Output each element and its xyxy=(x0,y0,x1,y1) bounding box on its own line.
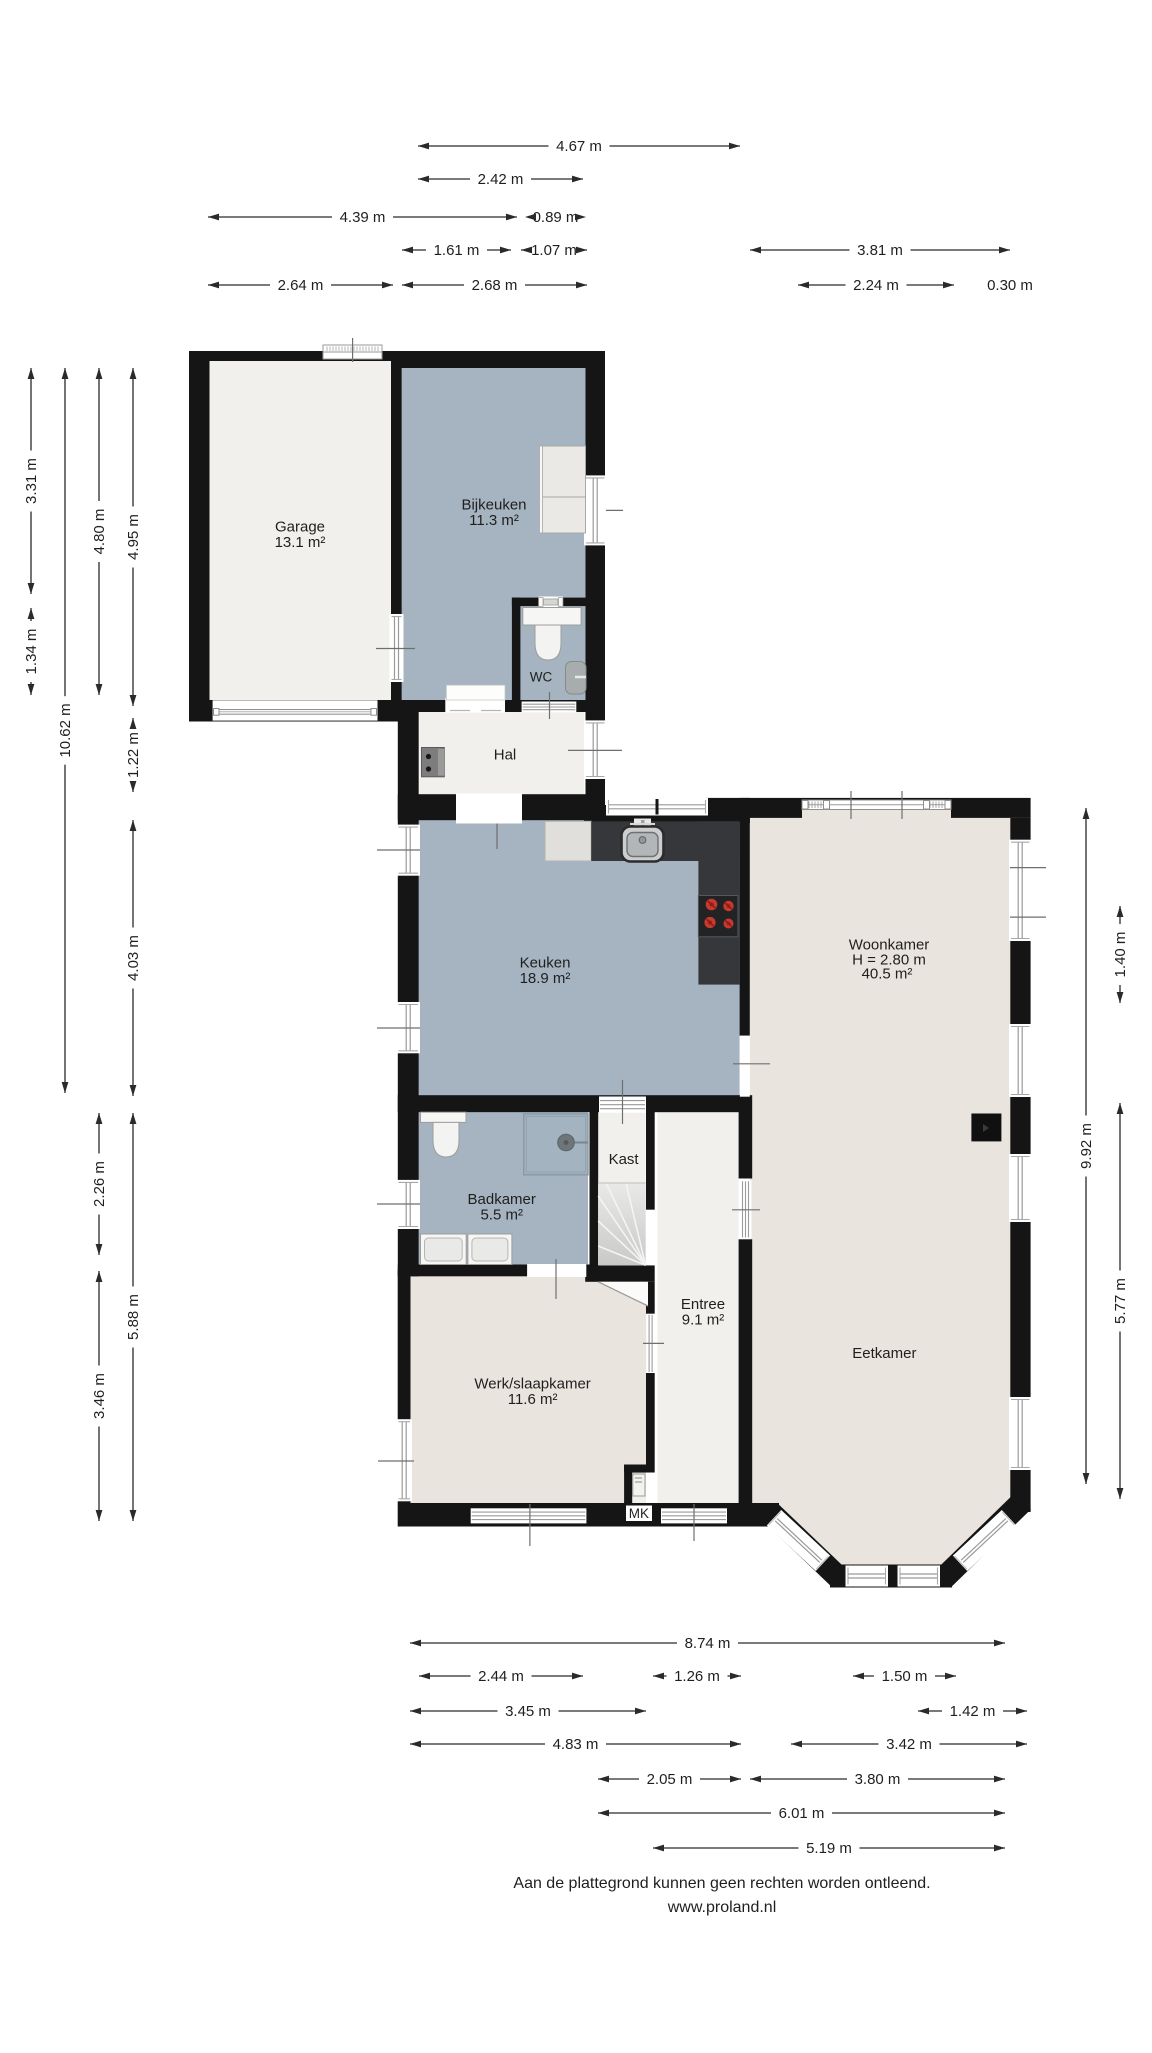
svg-text:1.07 m: 1.07 m xyxy=(531,242,577,259)
svg-text:8.74 m: 8.74 m xyxy=(685,1635,731,1652)
svg-text:4.95 m: 4.95 m xyxy=(125,514,142,560)
svg-text:5.19 m: 5.19 m xyxy=(806,1840,852,1857)
svg-text:3.42 m: 3.42 m xyxy=(886,1736,932,1753)
svg-text:1.61 m: 1.61 m xyxy=(434,242,480,259)
svg-text:1.40 m: 1.40 m xyxy=(1112,932,1129,978)
svg-text:9.92 m: 9.92 m xyxy=(1078,1123,1095,1169)
svg-text:0.30 m: 0.30 m xyxy=(987,277,1033,294)
svg-text:11.6 m²: 11.6 m² xyxy=(508,1391,558,1408)
svg-text:10.62 m: 10.62 m xyxy=(57,703,74,757)
svg-text:Entree: Entree xyxy=(681,1296,725,1313)
svg-text:Garage: Garage xyxy=(275,519,325,536)
svg-text:2.05 m: 2.05 m xyxy=(647,1771,693,1788)
svg-text:2.68 m: 2.68 m xyxy=(472,277,518,294)
svg-text:18.9 m²: 18.9 m² xyxy=(520,970,571,987)
svg-text:Hal: Hal xyxy=(494,747,517,764)
svg-text:3.80 m: 3.80 m xyxy=(855,1771,901,1788)
svg-text:MK: MK xyxy=(629,1506,649,1521)
svg-text:3.45 m: 3.45 m xyxy=(505,1703,551,1720)
svg-text:2.24 m: 2.24 m xyxy=(853,277,899,294)
svg-text:www.proland.nl: www.proland.nl xyxy=(667,1899,777,1916)
svg-text:11.3 m²: 11.3 m² xyxy=(469,512,519,529)
svg-text:3.31 m: 3.31 m xyxy=(23,458,40,504)
svg-text:5.77 m: 5.77 m xyxy=(1112,1278,1129,1324)
svg-text:Kast: Kast xyxy=(609,1151,640,1168)
svg-text:Keuken: Keuken xyxy=(520,955,571,972)
svg-text:5.5 m²: 5.5 m² xyxy=(480,1207,523,1224)
svg-text:9.1 m²: 9.1 m² xyxy=(682,1312,725,1329)
svg-text:1.26 m: 1.26 m xyxy=(674,1668,720,1685)
svg-text:2.64 m: 2.64 m xyxy=(278,277,324,294)
svg-text:Badkamer: Badkamer xyxy=(468,1191,536,1208)
svg-text:4.80 m: 4.80 m xyxy=(91,509,108,555)
svg-text:3.46 m: 3.46 m xyxy=(91,1373,108,1419)
svg-text:1.50 m: 1.50 m xyxy=(882,1668,928,1685)
svg-text:4.67 m: 4.67 m xyxy=(556,138,602,155)
svg-text:40.5 m²: 40.5 m² xyxy=(862,966,913,983)
svg-text:3.81 m: 3.81 m xyxy=(857,242,903,259)
svg-text:5.88 m: 5.88 m xyxy=(125,1294,142,1340)
svg-text:Aan de plattegrond kunnen geen: Aan de plattegrond kunnen geen rechten w… xyxy=(513,1875,930,1892)
svg-text:4.83 m: 4.83 m xyxy=(553,1736,599,1753)
svg-text:4.03 m: 4.03 m xyxy=(125,935,142,981)
svg-text:6.01 m: 6.01 m xyxy=(779,1805,825,1822)
svg-text:4.39 m: 4.39 m xyxy=(340,209,386,226)
svg-text:Werk/slaapkamer: Werk/slaapkamer xyxy=(474,1376,590,1393)
svg-text:Bijkeuken: Bijkeuken xyxy=(461,497,526,514)
svg-text:2.26 m: 2.26 m xyxy=(91,1161,108,1207)
svg-text:1.34 m: 1.34 m xyxy=(23,629,40,675)
svg-text:2.44 m: 2.44 m xyxy=(478,1668,524,1685)
svg-text:1.22 m: 1.22 m xyxy=(125,732,142,778)
svg-text:Eetkamer: Eetkamer xyxy=(852,1345,916,1362)
svg-text:2.42 m: 2.42 m xyxy=(478,171,524,188)
svg-text:WC: WC xyxy=(530,670,553,685)
svg-text:0.89 m: 0.89 m xyxy=(533,209,579,226)
svg-text:1.42 m: 1.42 m xyxy=(950,1703,996,1720)
svg-text:13.1 m²: 13.1 m² xyxy=(275,534,326,551)
